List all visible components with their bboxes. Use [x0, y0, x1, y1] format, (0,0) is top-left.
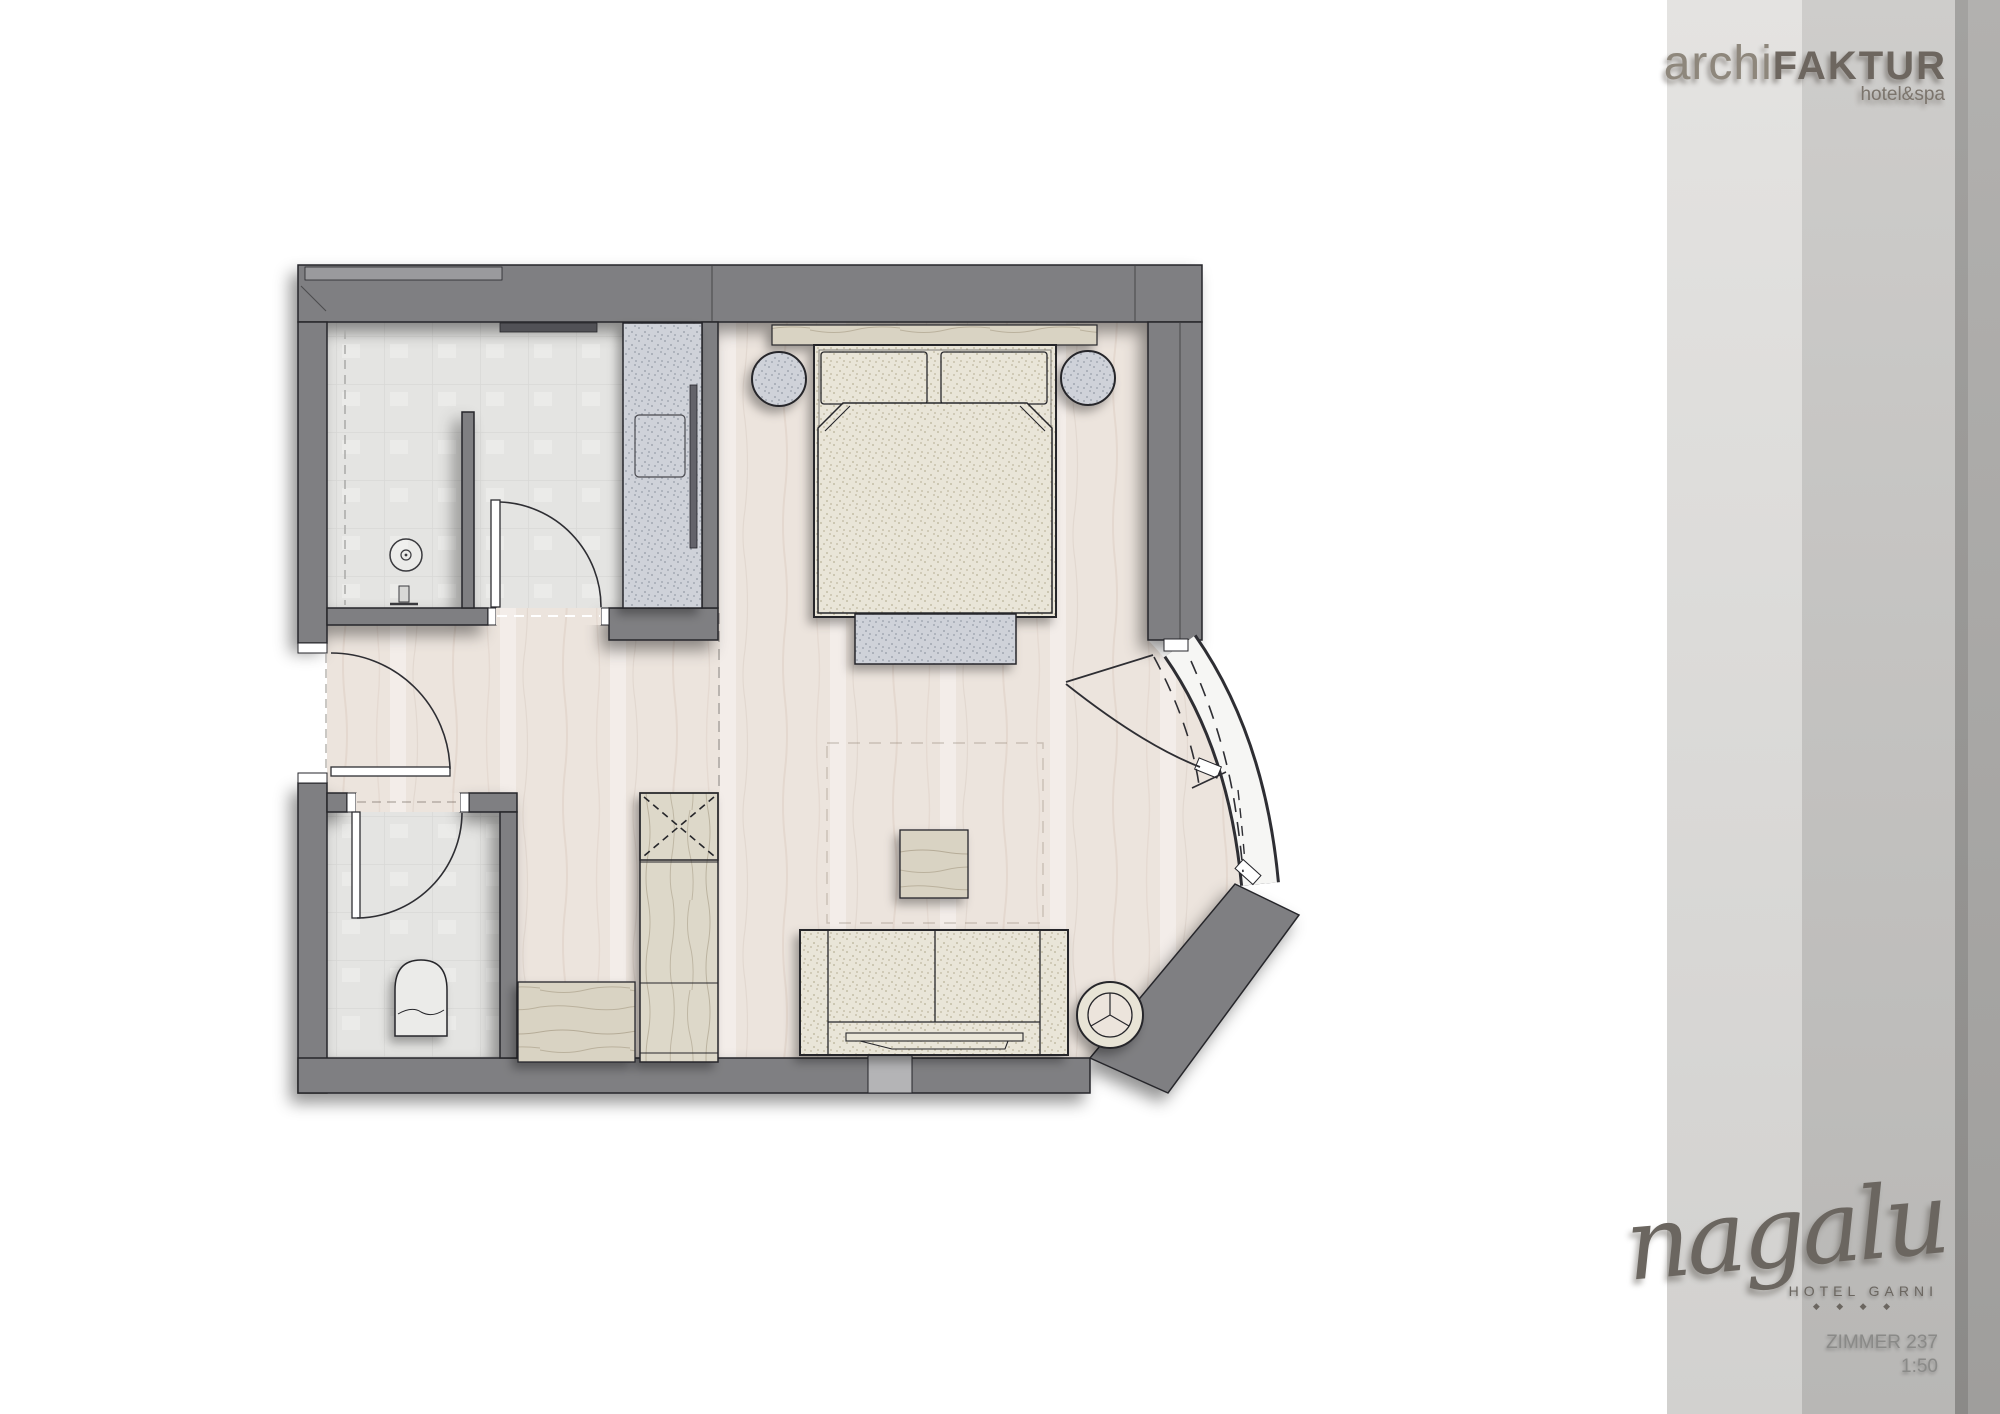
wall-wardrobe-right [702, 322, 718, 608]
wall-cap-light [305, 267, 502, 280]
brand-bold-text: FAKTUR [1773, 44, 1947, 89]
wall-left-lower [298, 783, 327, 1093]
bathroom-floor [327, 322, 623, 608]
wall-shower-partition [462, 412, 474, 608]
luggage-bench [518, 982, 635, 1062]
duvet [818, 403, 1052, 613]
bedside-stool-right [1061, 351, 1115, 405]
shower-control [399, 586, 409, 602]
tall-cabinet [640, 793, 718, 1062]
wall-bath-bottom [327, 608, 488, 625]
bedside-stool-left [752, 352, 806, 406]
hotel-logo-subtitle: HOTEL GARNI [1789, 1283, 1938, 1299]
wall-pier [868, 1054, 912, 1093]
wall-wc-right [500, 812, 517, 1058]
wardrobe-rod [690, 385, 697, 548]
double-bed [814, 345, 1056, 617]
scale-label: 1:50 [1901, 1356, 1938, 1378]
brand-light-text: archi [1664, 36, 1773, 91]
wall-bottom [298, 1058, 1090, 1093]
wall-wc-top-left [327, 793, 347, 812]
brand-wordmark: archiFAKTUR [1664, 36, 1947, 91]
bath-mirror-bar [500, 323, 597, 332]
hotel-stars: ◆ ◆ ◆ ◆ [1813, 1301, 1897, 1312]
wall-wc-top-right [469, 793, 517, 812]
hotel-logo-script: nagalu [1622, 1168, 1949, 1296]
sofa [800, 930, 1068, 1055]
wall-right [1148, 322, 1202, 640]
wall-under-wardrobe [609, 608, 718, 640]
headboard-shelf [772, 325, 1097, 345]
toilet [395, 960, 447, 1036]
wall-left-upper [298, 322, 327, 643]
wardrobe [623, 323, 702, 608]
side-table [900, 830, 968, 898]
pillow-right [941, 352, 1047, 404]
room-number-label: ZIMMER 237 [1826, 1332, 1938, 1354]
foot-bench [855, 614, 1016, 664]
round-ottoman [1077, 982, 1143, 1048]
brand-block-top: archiFAKTUR hotel&spa [1664, 36, 1947, 106]
presentation-sheet: archiFAKTUR hotel&spa nagalu HOTEL GARNI… [0, 0, 2000, 1414]
pillow-left [821, 352, 927, 404]
